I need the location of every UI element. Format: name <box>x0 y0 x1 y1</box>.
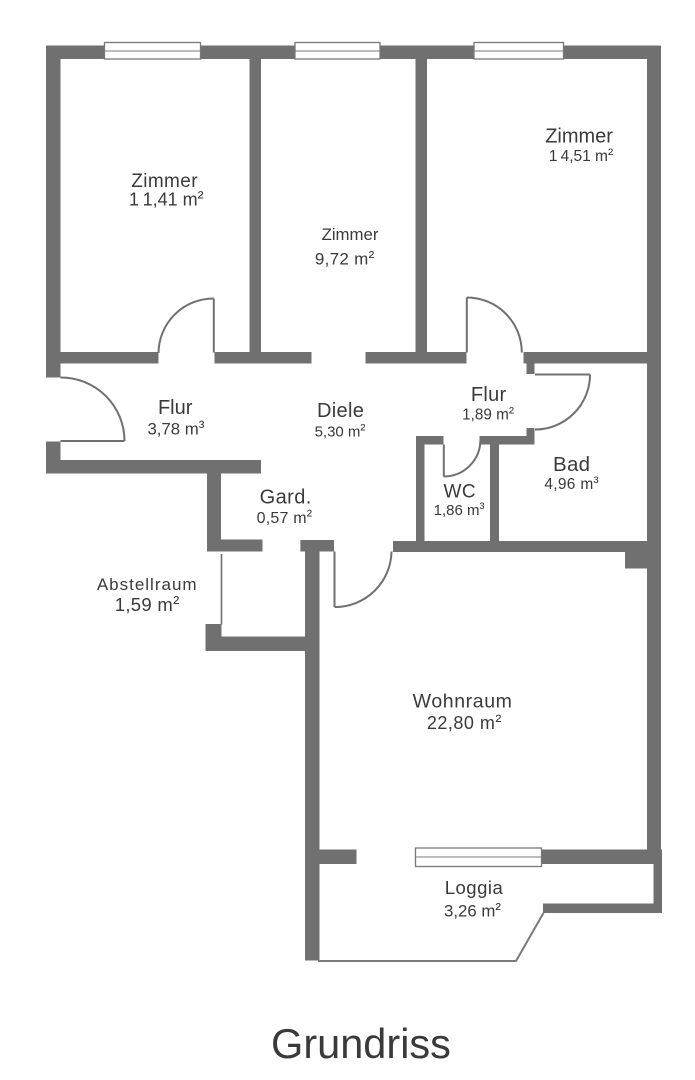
svg-text:22,80 m²: 22,80 m² <box>427 711 502 733</box>
svg-text:Wohnraum: Wohnraum <box>413 690 513 712</box>
svg-text:1 4,51 m²: 1 4,51 m² <box>549 146 613 165</box>
svg-text:Diele: Diele <box>317 400 364 422</box>
svg-text:Flur: Flur <box>471 384 507 406</box>
svg-text:Bad: Bad <box>553 453 590 476</box>
svg-text:1,59 m²: 1,59 m² <box>115 592 180 615</box>
svg-text:1,86 m³: 1,86 m³ <box>434 500 485 519</box>
svg-text:3,78 m³: 3,78 m³ <box>147 417 204 438</box>
svg-text:3,26 m²: 3,26 m² <box>444 899 501 920</box>
svg-text:Abstellraum: Abstellraum <box>97 575 198 594</box>
svg-text:5,30 m²: 5,30 m² <box>315 422 366 441</box>
svg-text:Zimmer: Zimmer <box>545 126 613 148</box>
svg-text:Grundriss: Grundriss <box>271 1020 451 1067</box>
svg-text:Gard.: Gard. <box>260 486 312 508</box>
svg-text:1,89 m²: 1,89 m² <box>462 404 514 423</box>
svg-text:4,96 m³: 4,96 m³ <box>544 474 599 493</box>
svg-text:1 1,41 m²: 1 1,41 m² <box>129 188 204 210</box>
svg-text:9,72 m²: 9,72 m² <box>315 248 375 269</box>
svg-text:WC: WC <box>443 482 476 503</box>
svg-text:Flur: Flur <box>158 397 193 419</box>
svg-text:Zimmer: Zimmer <box>322 225 379 244</box>
svg-text:Loggia: Loggia <box>445 877 504 898</box>
svg-text:0,57 m²: 0,57 m² <box>257 508 313 527</box>
